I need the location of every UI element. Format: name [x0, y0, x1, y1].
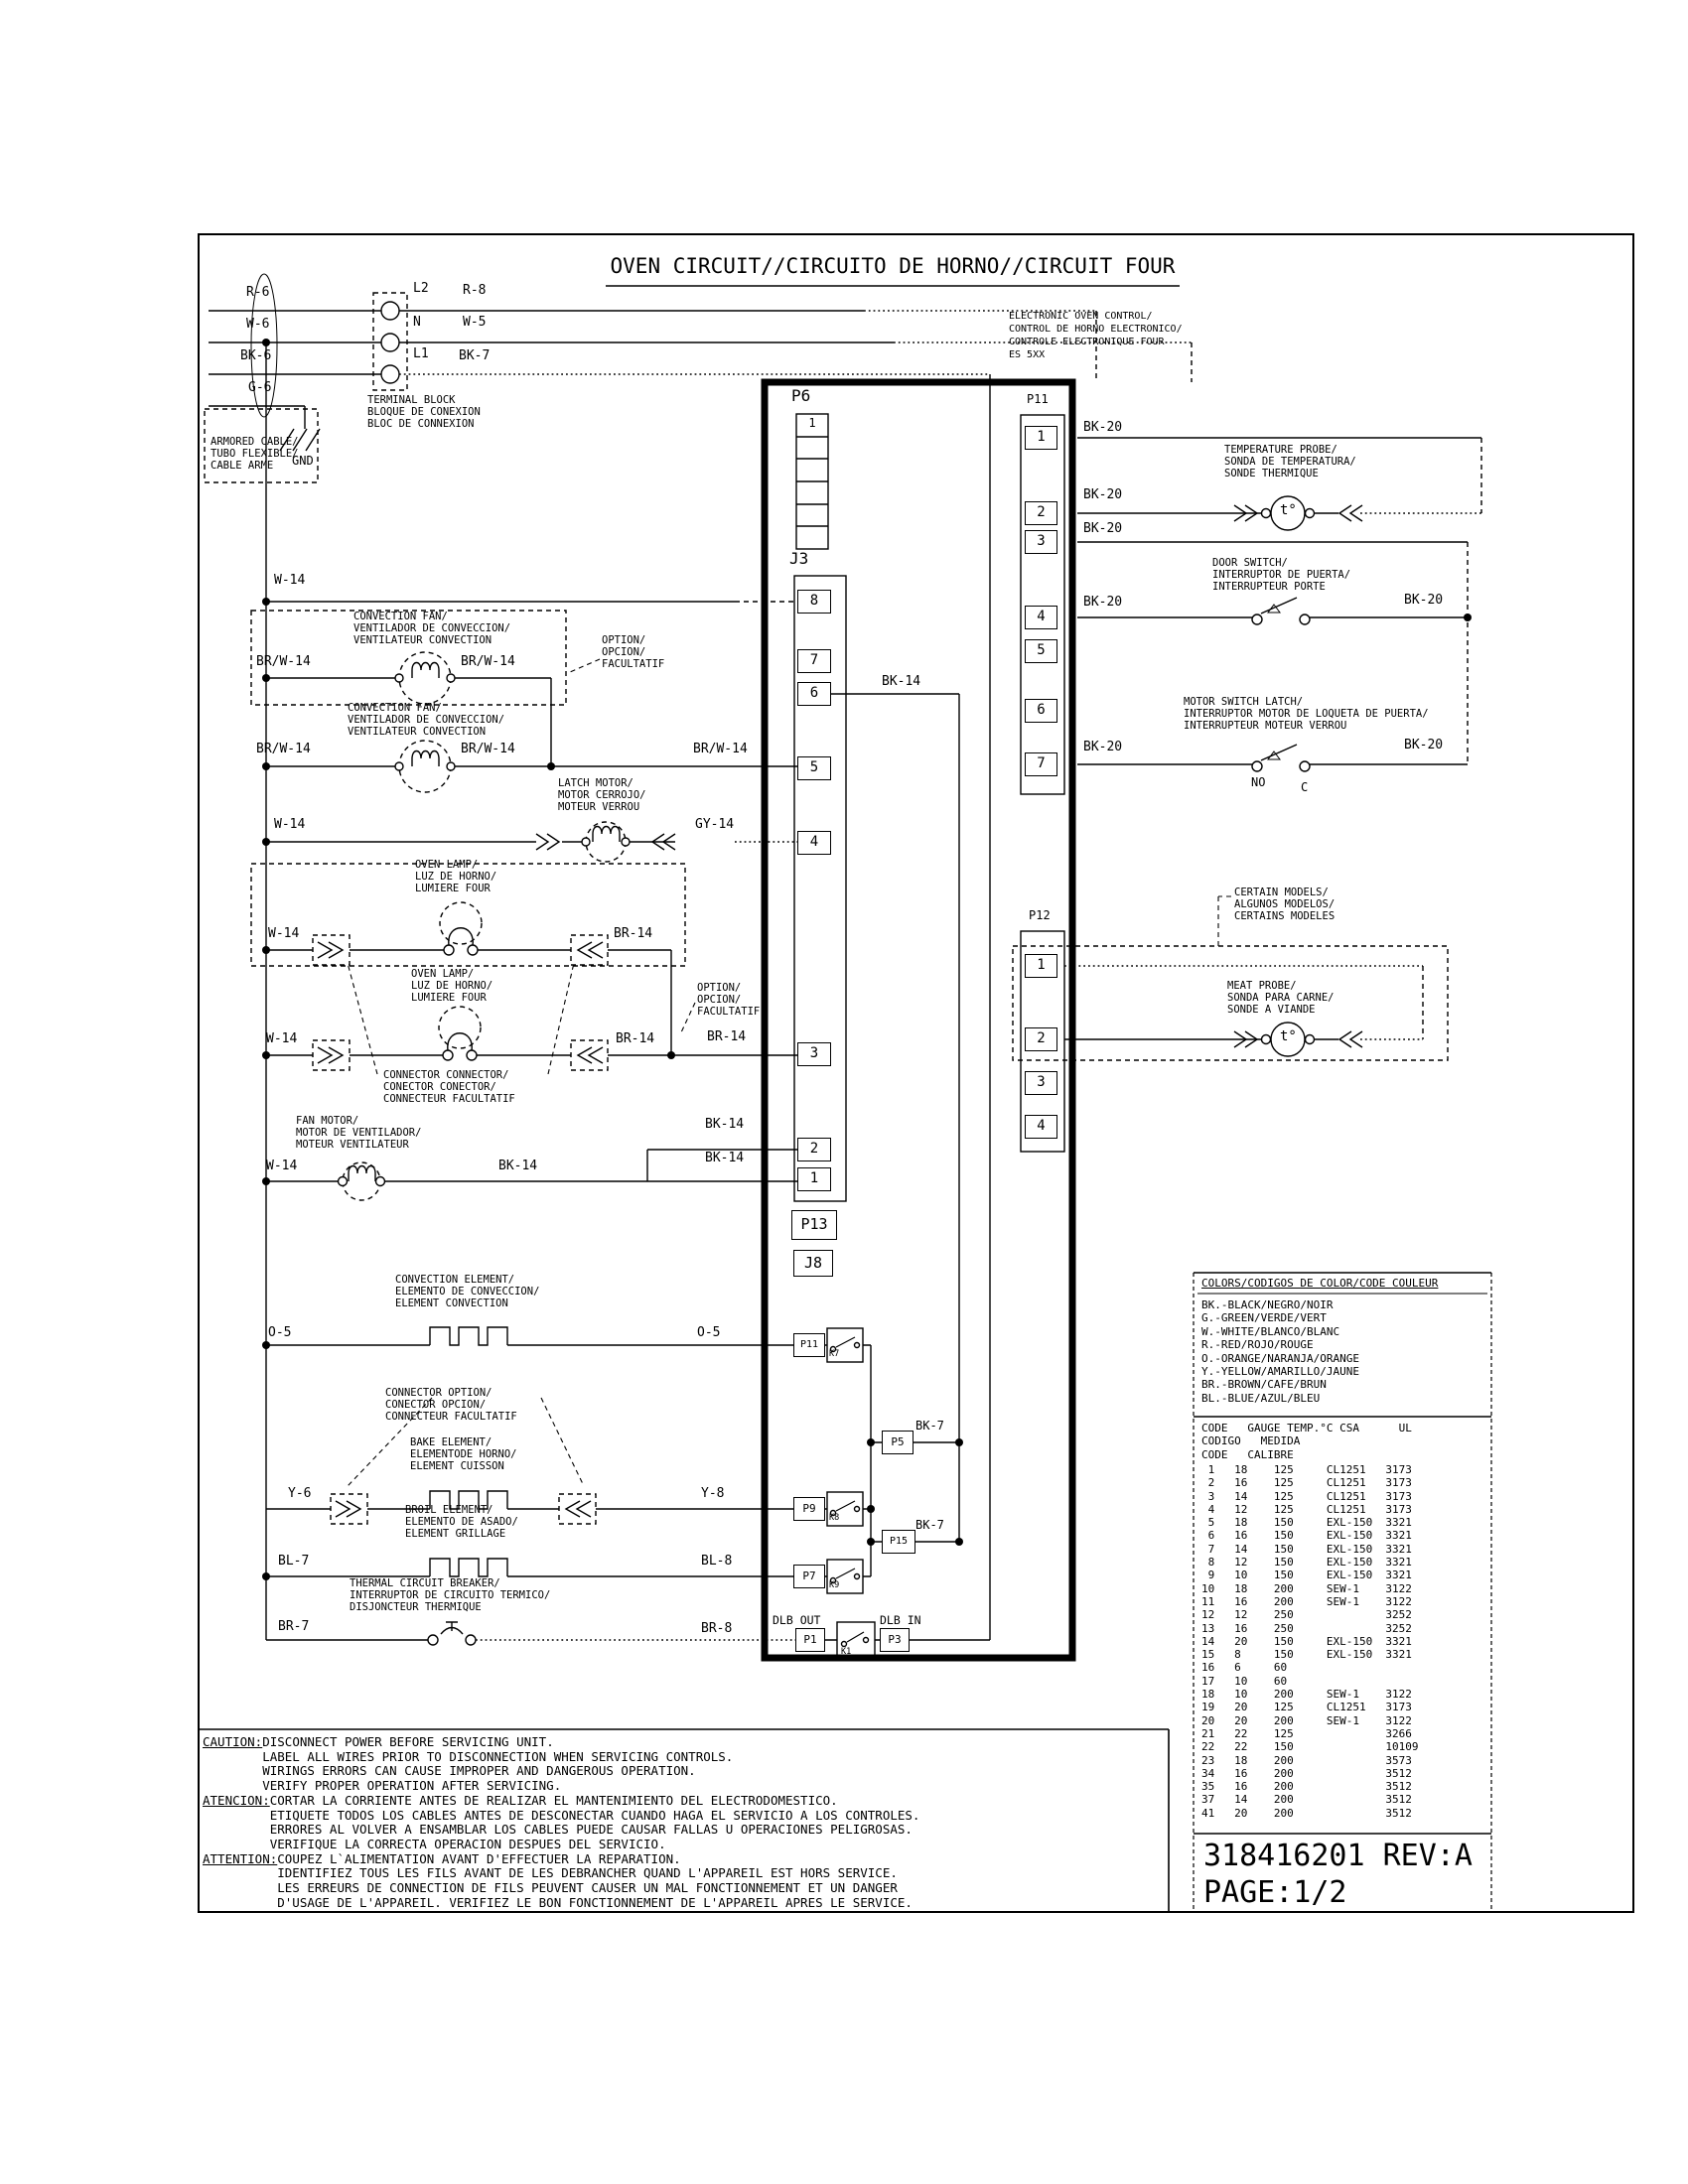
p15-connector: P15 [882, 1530, 915, 1554]
j3-pin: 8 [797, 590, 831, 614]
armored-cable-label: ARMORED CABLE/ TUBO FLEXIBLE/ CABLE ARME [211, 437, 299, 473]
wire-label: BK-7 [459, 349, 490, 364]
wire-label: W-14 [266, 1160, 297, 1174]
page-title: OVEN CIRCUIT//CIRCUITO DE HORNO//CIRCUIT… [606, 254, 1180, 278]
j3-pin: 4 [797, 831, 831, 855]
wire-label: BR-14 [707, 1030, 746, 1045]
gauge-table-header: CODE GAUGE TEMP.°C CSA UL CODIGO MEDIDA … [1201, 1422, 1412, 1461]
wire-label: W-14 [268, 927, 299, 942]
option-label: OPTION/ OPCION/ FACULTATIF [602, 635, 664, 671]
wire-label: BK-14 [498, 1160, 537, 1174]
j3-pin: 5 [797, 756, 831, 780]
p11-pin: 2 [1025, 501, 1057, 525]
gauge-table-rows: 1 18 125 CL1251 3173 2 16 125 CL1251 317… [1201, 1463, 1419, 1820]
connector-connector-label: CONNECTOR CONNECTOR/ CONECTOR CONECTOR/ … [383, 1070, 515, 1106]
caution-line: IDENTIFIEZ TOUS LES FILS AVANT DE LES DE… [203, 1866, 919, 1881]
caution-block: CAUTION:DISCONNECT POWER BEFORE SERVICIN… [203, 1735, 919, 1910]
certain-models-label: CERTAIN MODELS/ ALGUNOS MODELOS/ CERTAIN… [1234, 887, 1335, 923]
p1-connector: P1 [795, 1628, 825, 1652]
broil-element-label: BROIL ELEMENT/ ELEMENTO DE ASADO/ ELEMEN… [405, 1505, 518, 1541]
gnd-label: GND [292, 455, 314, 469]
terminal-block-label: TERMINAL BLOCK BLOQUE DE CONEXION BLOC D… [367, 395, 481, 431]
p7-connector: P7 [793, 1565, 825, 1588]
p11-pin: 4 [1025, 606, 1057, 629]
wire-label: O-5 [268, 1326, 291, 1341]
fan-motor-label: FAN MOTOR/ MOTOR DE VENTILADOR/ MOTEUR V… [296, 1116, 421, 1152]
wire-label: BR/W-14 [461, 743, 515, 757]
j3-pin: 3 [797, 1042, 831, 1066]
temp-symbol: t° [1280, 1029, 1296, 1045]
relay-label: K1 [841, 1648, 851, 1658]
wire-label: BR-14 [614, 927, 652, 942]
p12-pin: 2 [1025, 1027, 1057, 1051]
wire-label: BK-14 [705, 1152, 744, 1166]
wire-label: G-6 [248, 381, 271, 396]
wire-label: BR/W-14 [256, 655, 311, 670]
wire-label: R-8 [463, 284, 486, 299]
wire-label: BR/W-14 [693, 743, 748, 757]
convection-fan-label: CONVECTION FAN/ VENTILADOR DE CONVECCION… [348, 703, 504, 739]
wire-label: L1 [413, 347, 429, 362]
convection-element-label: CONVECTION ELEMENT/ ELEMENTO DE CONVECCI… [395, 1275, 539, 1310]
j3-label: J3 [789, 550, 808, 568]
caution-line: ERRORES AL VOLVER A ENSAMBLAR LOS CABLES… [203, 1823, 919, 1838]
wire-label: BK-7 [915, 1519, 944, 1533]
dlb-in-label: DLB IN [880, 1614, 921, 1627]
wire-label: BR-8 [701, 1622, 732, 1637]
wire-label: BK-14 [705, 1118, 744, 1133]
caution-line: VERIFY PROPER OPERATION AFTER SERVICING. [203, 1779, 919, 1794]
relay-label: K8 [829, 1514, 839, 1524]
wire-label: GY-14 [695, 818, 734, 833]
wire-label: W-5 [463, 316, 486, 331]
latch-motor-label: LATCH MOTOR/ MOTOR CERROJO/ MOTEUR VERRO… [558, 778, 646, 814]
relay-label: K7 [829, 1350, 839, 1360]
caution-line: LABEL ALL WIRES PRIOR TO DISCONNECTION W… [203, 1750, 919, 1765]
p5-connector: P5 [882, 1431, 914, 1454]
page-indicator: PAGE:1/2 [1203, 1875, 1347, 1910]
wire-label: BK-20 [1404, 739, 1443, 753]
wire-label: N [413, 316, 421, 331]
wire-label: BL-8 [701, 1555, 732, 1570]
wire-label: BR-14 [616, 1032, 654, 1047]
eoc-label: ELECTRONIC OVEN CONTROL/ CONTROL DE HORN… [1009, 310, 1183, 361]
wire-label: BR/W-14 [256, 743, 311, 757]
wire-label: BR/W-14 [461, 655, 515, 670]
oven-lamp-label: OVEN LAMP/ LUZ DE HORNO/ LUMIERE FOUR [415, 860, 496, 895]
j3-pin: 7 [797, 649, 831, 673]
schematic-page: OVEN CIRCUIT//CIRCUITO DE HORNO//CIRCUIT… [0, 0, 1688, 2184]
oven-lamp-label: OVEN LAMP/ LUZ DE HORNO/ LUMIERE FOUR [411, 969, 492, 1005]
caution-line: WIRINGS ERRORS CAN CAUSE IMPROPER AND DA… [203, 1764, 919, 1779]
caution-line: ETIQUETE TODOS LOS CABLES ANTES DE DESCO… [203, 1809, 919, 1824]
control-board-outline [765, 382, 1072, 1658]
j3-pin: 1 [797, 1167, 831, 1191]
wire-label: BR-7 [278, 1620, 309, 1635]
j3-pin: 2 [797, 1138, 831, 1161]
caution-line: D'USAGE DE L'APPAREIL. VERIFIEZ LE BON F… [203, 1896, 919, 1911]
wire-label: BK-20 [1083, 488, 1122, 503]
wire-label: W-14 [274, 818, 305, 833]
p12-pin: 1 [1025, 954, 1057, 978]
connector-option-label: CONNECTOR OPTION/ CONECTOR OPCION/ CONNE… [385, 1388, 517, 1424]
wire-label: BK-20 [1083, 421, 1122, 436]
p6-label: P6 [791, 387, 810, 405]
p11-pin: 1 [1025, 426, 1057, 450]
p11-pin: 6 [1025, 699, 1057, 723]
color-code-list: BK.-BLACK/NEGRO/NOIR G.-GREEN/VERDE/VERT… [1201, 1298, 1359, 1405]
temp-symbol: t° [1280, 503, 1296, 519]
caution-line: ATENCION:CORTAR LA CORRIENTE ANTES DE RE… [203, 1794, 919, 1809]
wire-label: R-6 [246, 286, 269, 301]
wire-label: BK-20 [1083, 741, 1122, 755]
wire-label: BK-14 [882, 675, 920, 690]
wire-label: W-14 [266, 1032, 297, 1047]
p12-pin: 4 [1025, 1115, 1057, 1139]
wire-label: BK-6 [240, 349, 271, 364]
wire-label: W-6 [246, 318, 269, 333]
wire-label: L2 [413, 282, 429, 297]
j3-pin: 6 [797, 682, 831, 706]
p3-connector: P3 [880, 1628, 910, 1652]
wire-label: BK-7 [915, 1420, 944, 1433]
wire-label: Y-6 [288, 1487, 311, 1502]
door-switch-label: DOOR SWITCH/ INTERRUPTOR DE PUERTA/ INTE… [1212, 558, 1350, 594]
wire-label: BK-20 [1083, 596, 1122, 611]
wire-label: BK-20 [1083, 522, 1122, 537]
dlb-out-label: DLB OUT [773, 1614, 820, 1627]
temperature-probe-label: TEMPERATURE PROBE/ SONDA DE TEMPERATURA/… [1224, 445, 1356, 480]
motor-switch-latch-label: MOTOR SWITCH LATCH/ INTERRUPTOR MOTOR DE… [1184, 697, 1429, 733]
p11-label: P11 [1027, 393, 1049, 407]
p9-connector: P9 [793, 1497, 825, 1521]
p11-pin: 5 [1025, 639, 1057, 663]
wire-label: BK-20 [1404, 594, 1443, 609]
p6-pin: 1 [796, 417, 828, 431]
p11-relay-box: P11 [793, 1333, 825, 1357]
j8-connector: J8 [793, 1250, 833, 1277]
p13-connector: P13 [791, 1210, 837, 1240]
convection-fan-label: CONVECTION FAN/ VENTILADOR DE CONVECCION… [353, 612, 510, 647]
wire-label: C [1301, 781, 1308, 795]
wire-label: O-5 [697, 1326, 720, 1341]
caution-line: VERIFIQUE LA CORRECTA OPERACION DESPUES … [203, 1838, 919, 1852]
caution-line: ATTENTION:COUPEZ L`ALIMENTATION AVANT D'… [203, 1852, 919, 1867]
option-label: OPTION/ OPCION/ FACULTATIF [697, 983, 760, 1019]
wire-label: BL-7 [278, 1555, 309, 1570]
p12-pin: 3 [1025, 1071, 1057, 1095]
p11-pin: 7 [1025, 752, 1057, 776]
part-number: 318416201 REV:A [1203, 1839, 1473, 1873]
wire-label: NO [1251, 776, 1265, 790]
meat-probe-label: MEAT PROBE/ SONDA PARA CARNE/ SONDE A VI… [1227, 981, 1334, 1017]
wire-label: W-14 [274, 574, 305, 589]
caution-line: CAUTION:DISCONNECT POWER BEFORE SERVICIN… [203, 1735, 919, 1750]
relay-label: K9 [829, 1581, 839, 1591]
caution-line: LES ERREURS DE CONNECTION DE FILS PEUVEN… [203, 1881, 919, 1896]
p11-pin: 3 [1025, 530, 1057, 554]
thermal-breaker-label: THERMAL CIRCUIT BREAKER/ INTERRUPTOR DE … [350, 1578, 550, 1614]
wire-label: Y-8 [701, 1487, 724, 1502]
bake-element-label: BAKE ELEMENT/ ELEMENTODE HORNO/ ELEMENT … [410, 1437, 516, 1473]
color-code-title: COLORS/CODIGOS DE COLOR/CODE COULEUR [1201, 1277, 1438, 1290]
p12-label: P12 [1029, 909, 1051, 923]
